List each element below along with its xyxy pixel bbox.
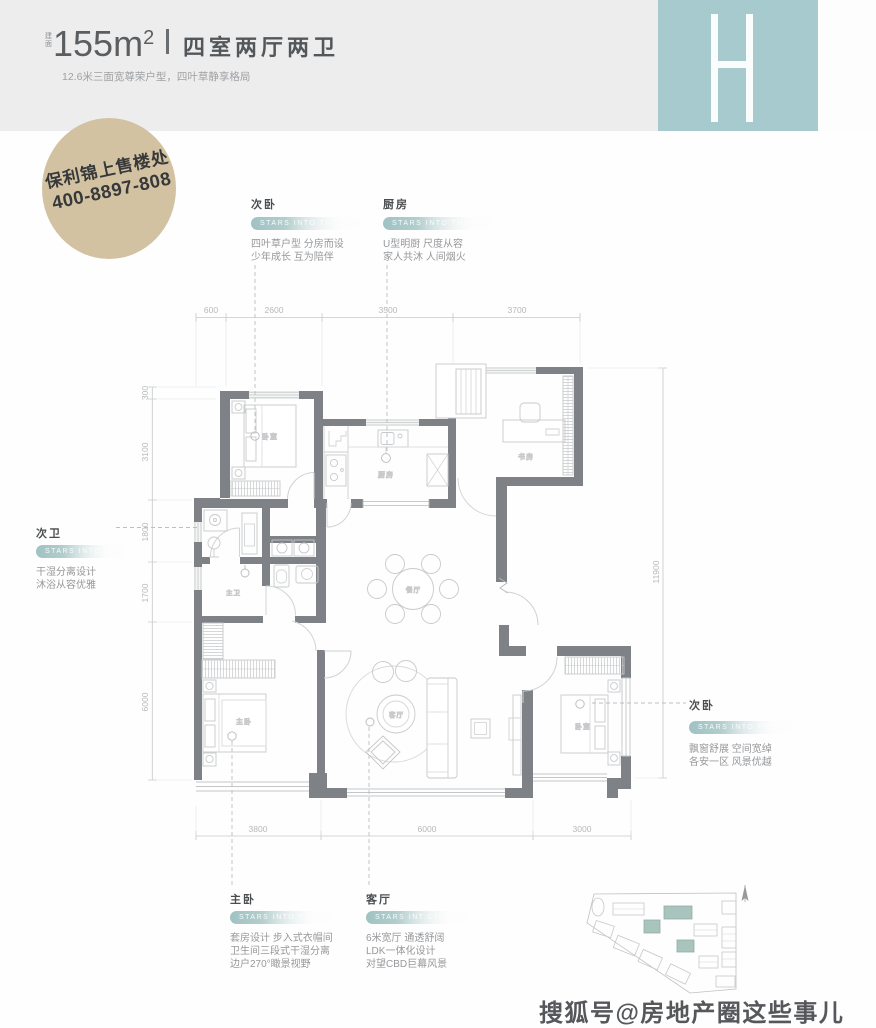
svg-text:11900: 11900 [651, 560, 661, 583]
svg-text:3700: 3700 [508, 305, 527, 315]
svg-text:卧室: 卧室 [262, 432, 278, 441]
svg-text:书房: 书房 [518, 452, 534, 461]
svg-text:3500: 3500 [379, 305, 398, 315]
svg-text:3000: 3000 [573, 824, 592, 834]
svg-text:300: 300 [140, 386, 150, 400]
svg-text:主卧: 主卧 [236, 717, 252, 726]
svg-text:3100: 3100 [140, 442, 150, 461]
svg-text:600: 600 [204, 305, 218, 315]
svg-text:卧室: 卧室 [575, 722, 591, 731]
svg-text:厨房: 厨房 [378, 470, 394, 479]
svg-text:餐厅: 餐厅 [406, 585, 421, 594]
svg-text:2600: 2600 [265, 305, 284, 315]
svg-text:3800: 3800 [249, 824, 268, 834]
svg-text:客厅: 客厅 [389, 710, 404, 719]
svg-text:主卫: 主卫 [226, 588, 241, 597]
svg-text:6000: 6000 [140, 692, 150, 711]
svg-text:6000: 6000 [418, 824, 437, 834]
svg-text:1800: 1800 [140, 522, 150, 541]
svg-text:1700: 1700 [140, 583, 150, 602]
